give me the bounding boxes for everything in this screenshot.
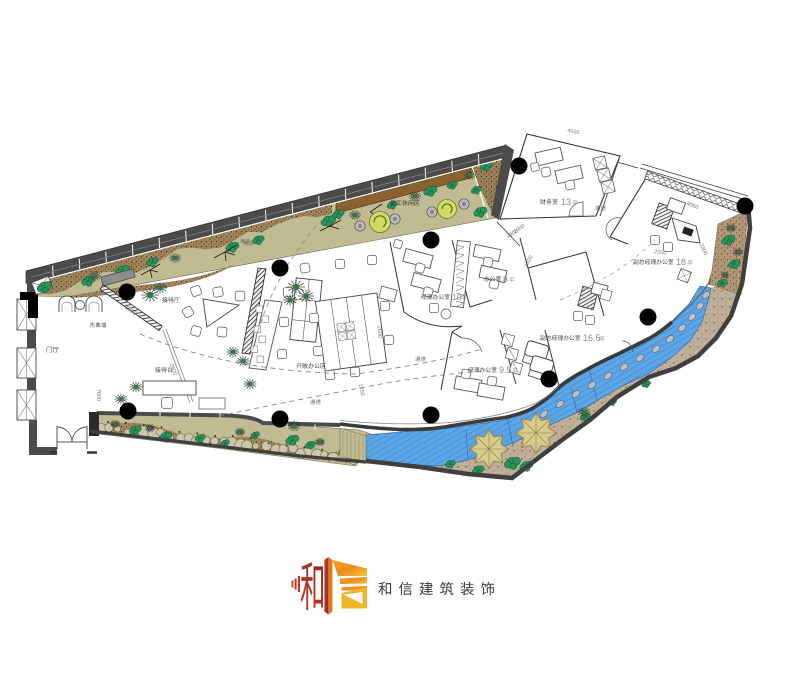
svg-text:10: 10	[452, 292, 462, 302]
svg-text:2600: 2600	[375, 326, 382, 339]
svg-text:18: 18	[676, 257, 686, 267]
svg-text:7600: 7600	[95, 389, 101, 401]
svg-text:16.5: 16.5	[583, 333, 601, 343]
svg-text:9.5: 9.5	[499, 365, 512, 375]
svg-text:8: 8	[503, 274, 508, 284]
svg-text:13: 13	[561, 197, 571, 207]
